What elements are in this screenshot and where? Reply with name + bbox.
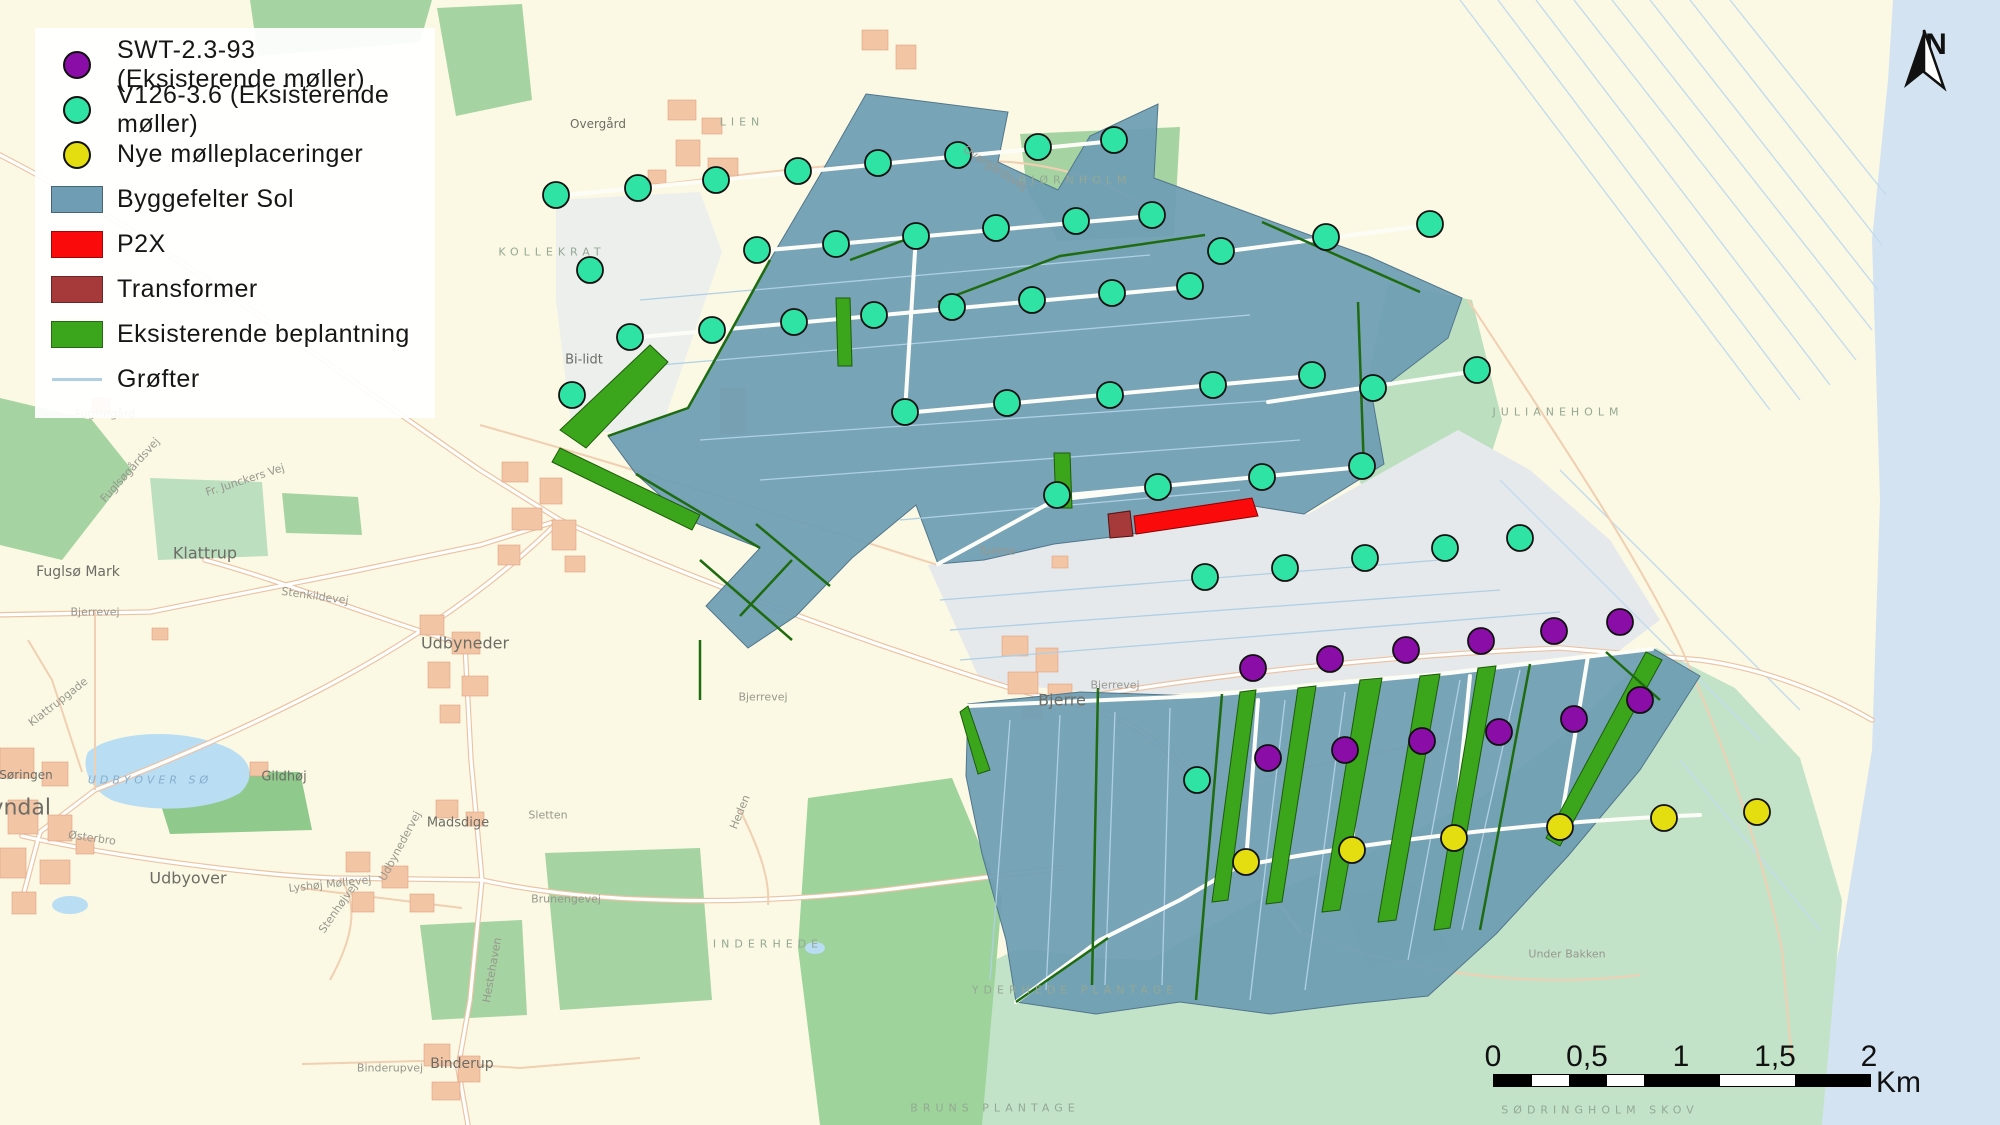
turbine-marker-v126 (1432, 535, 1458, 561)
turbine-marker-v126 (1200, 372, 1226, 398)
turbine-marker-nye (1744, 799, 1770, 825)
legend-item-nye: Nye mølleplaceringer (51, 132, 417, 177)
turbine-marker-v126 (1177, 273, 1203, 299)
turbine-marker-swt (1627, 687, 1653, 713)
legend-symbol-beplantning (51, 321, 103, 348)
turbine-marker-v126 (1352, 545, 1378, 571)
turbine-marker-v126 (1097, 382, 1123, 408)
turbine-marker-nye (1339, 837, 1365, 863)
scale-tick-label: 0 (1485, 1040, 1502, 1074)
turbine-marker-swt (1317, 646, 1343, 672)
scale-tick-label: 1,5 (1754, 1040, 1796, 1074)
turbine-marker-v126 (1099, 280, 1125, 306)
turbine-marker-v126 (577, 257, 603, 283)
turbine-marker-v126 (939, 294, 965, 320)
turbine-marker-v126 (543, 182, 569, 208)
turbine-marker-swt (1468, 628, 1494, 654)
turbine-marker-v126 (1299, 362, 1325, 388)
scale-tick-label: 1 (1673, 1040, 1690, 1074)
turbine-marker-swt (1240, 655, 1266, 681)
legend-symbol-nye (51, 141, 103, 169)
turbine-marker-v126 (865, 150, 891, 176)
turbine-marker-swt (1409, 728, 1435, 754)
turbine-marker-v126 (1349, 453, 1375, 479)
legend-item-grofter: Grøfter (51, 357, 417, 402)
legend-label: Grøfter (117, 365, 200, 394)
legend-item-p2x: P2X (51, 222, 417, 267)
legend-label: V126-3.6 (Eksisterende møller) (117, 81, 417, 139)
p2x-swatch-icon (51, 231, 103, 258)
legend-label: Nye mølleplaceringer (117, 140, 363, 169)
scale-bar-ticks: 00,511,52 (1478, 1040, 1938, 1074)
legend: SWT-2.3-93 (Eksisterende møller)V126-3.6… (35, 28, 435, 418)
turbine-marker-v126 (1507, 525, 1533, 551)
turbine-marker-v126 (1139, 202, 1165, 228)
scale-bar-segments (1493, 1074, 1871, 1087)
legend-symbol-v126 (51, 96, 103, 124)
turbine-marker-v126 (1063, 208, 1089, 234)
transformer-area (1108, 511, 1133, 538)
transformer-swatch-icon (51, 276, 103, 303)
turbine-marker-v126 (1313, 224, 1339, 250)
turbine-marker-nye (1651, 805, 1677, 831)
legend-symbol-p2x (51, 231, 103, 258)
beplantning-swatch-icon (51, 321, 103, 348)
scale-bar-unit: Km (1876, 1066, 1921, 1100)
legend-item-beplantning: Eksisterende beplantning (51, 312, 417, 357)
turbine-marker-v126 (744, 237, 770, 263)
legend-symbol-transformer (51, 276, 103, 303)
legend-item-sol: Byggefelter Sol (51, 177, 417, 222)
turbine-marker-nye (1233, 849, 1259, 875)
turbine-marker-swt (1393, 637, 1419, 663)
map-canvas[interactable]: OvergårdLIENBJØRNHOLMOvergårdsvejKOLLEKR… (0, 0, 2000, 1125)
turbine-marker-v126 (1145, 474, 1171, 500)
turbine-marker-v126 (1184, 767, 1210, 793)
turbine-marker-v126 (1208, 238, 1234, 264)
turbine-marker-v126 (1101, 127, 1127, 153)
turbine-marker-swt (1486, 719, 1512, 745)
turbine-marker-v126 (903, 223, 929, 249)
turbine-marker-swt (1255, 745, 1281, 771)
scale-tick-label: 0,5 (1566, 1040, 1608, 1074)
turbine-marker-v126 (1019, 287, 1045, 313)
turbine-marker-v126 (785, 158, 811, 184)
turbine-marker-v126 (892, 399, 918, 425)
north-arrow-icon (1896, 28, 1952, 94)
legend-symbol-grofter (51, 378, 103, 381)
turbine-marker-v126 (625, 175, 651, 201)
turbine-marker-v126 (823, 231, 849, 257)
turbine-marker-v126 (994, 390, 1020, 416)
turbine-marker-v126 (1192, 564, 1218, 590)
swt-swatch-icon (63, 51, 91, 79)
turbine-marker-v126 (703, 167, 729, 193)
scale-tick-label: 2 (1861, 1040, 1878, 1074)
legend-item-transformer: Transformer (51, 267, 417, 312)
turbine-marker-v126 (1464, 357, 1490, 383)
north-arrow: N (1896, 28, 1976, 62)
sol-swatch-icon (51, 186, 103, 213)
turbine-marker-v126 (1044, 482, 1070, 508)
turbine-marker-v126 (1417, 211, 1443, 237)
grofter-swatch-icon (52, 378, 102, 381)
v126-swatch-icon (63, 96, 91, 124)
legend-symbol-swt (51, 51, 103, 79)
scale-bar: 00,511,52 Km (1478, 1040, 1938, 1110)
legend-label: Transformer (117, 275, 258, 304)
nye-swatch-icon (63, 141, 91, 169)
turbine-marker-nye (1441, 825, 1467, 851)
turbine-marker-swt (1607, 609, 1633, 635)
turbine-marker-v126 (699, 317, 725, 343)
turbine-marker-v126 (1025, 134, 1051, 160)
turbine-marker-nye (1547, 814, 1573, 840)
turbine-marker-swt (1561, 706, 1587, 732)
turbine-marker-v126 (983, 215, 1009, 241)
turbine-marker-v126 (1249, 464, 1275, 490)
turbine-marker-v126 (1360, 375, 1386, 401)
turbine-marker-v126 (781, 309, 807, 335)
turbine-marker-v126 (617, 324, 643, 350)
turbine-marker-v126 (1272, 555, 1298, 581)
legend-label: Byggefelter Sol (117, 185, 294, 214)
turbine-marker-swt (1541, 618, 1567, 644)
turbine-marker-swt (1332, 737, 1358, 763)
turbine-marker-v126 (861, 302, 887, 328)
turbine-marker-v126 (559, 382, 585, 408)
legend-symbol-sol (51, 186, 103, 213)
legend-item-v126: V126-3.6 (Eksisterende møller) (51, 87, 417, 132)
legend-label: Eksisterende beplantning (117, 320, 410, 349)
legend-label: P2X (117, 230, 166, 259)
turbine-marker-v126 (945, 142, 971, 168)
